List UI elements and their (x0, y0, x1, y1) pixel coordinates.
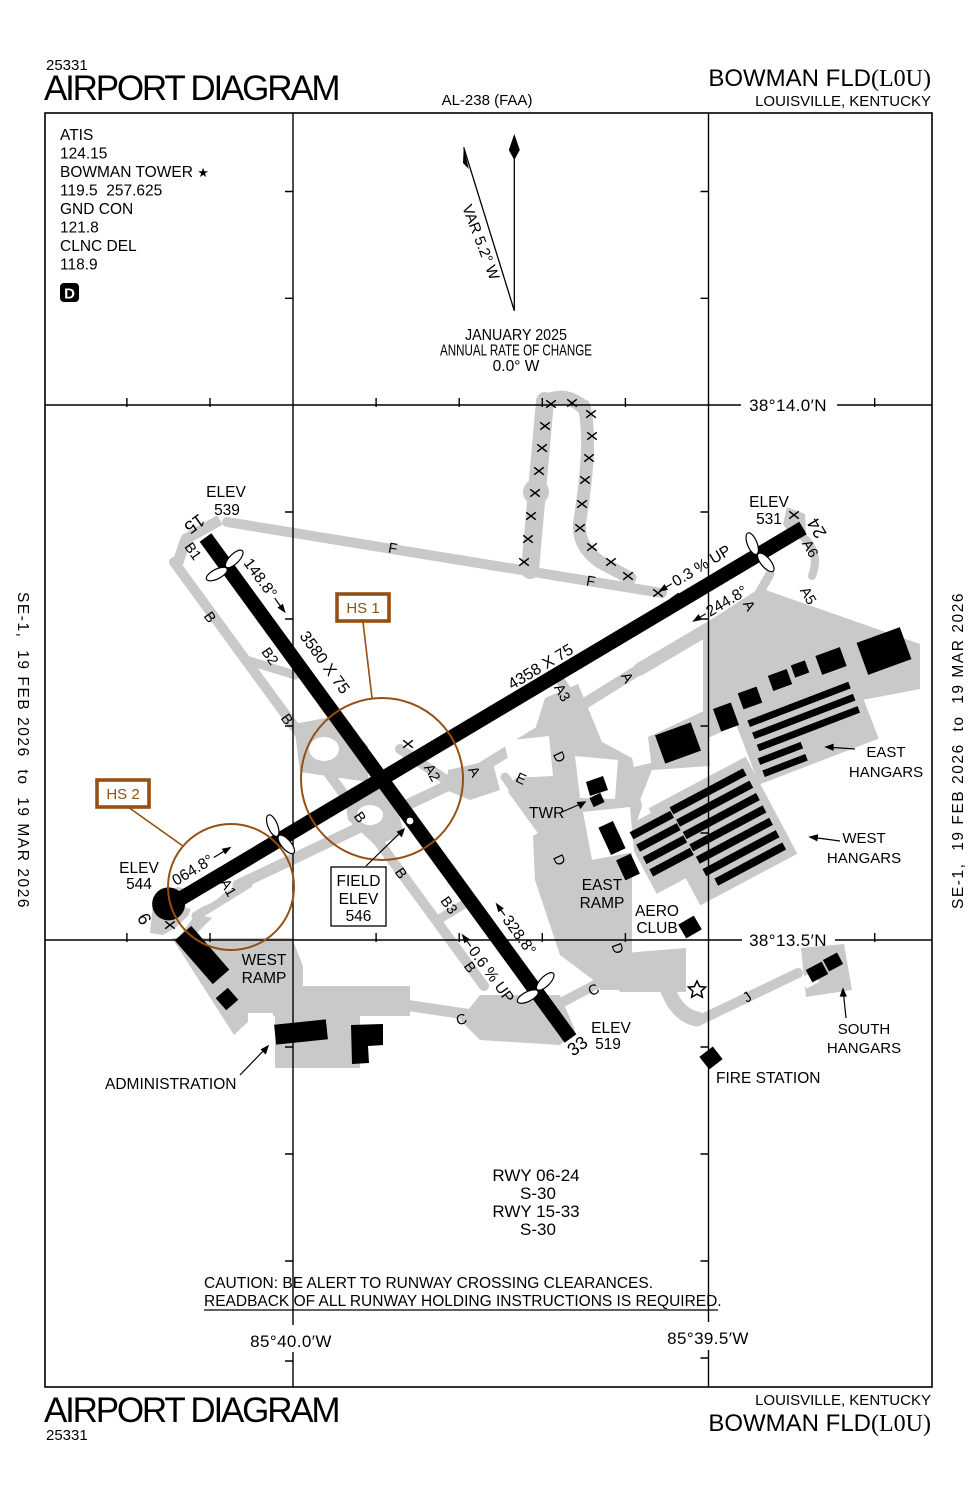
svg-text:531: 531 (756, 511, 782, 528)
svg-text:S-30: S-30 (520, 1184, 556, 1203)
svg-text:RAMP: RAMP (580, 895, 625, 912)
svg-text:AIRPORT DIAGRAM: AIRPORT DIAGRAM (44, 69, 338, 108)
svg-text:ELEV: ELEV (339, 891, 379, 908)
svg-text:D: D (64, 286, 75, 303)
svg-text:BOWMAN FLD(L0U): BOWMAN FLD(L0U) (708, 65, 931, 92)
svg-text:ELEV: ELEV (749, 494, 789, 511)
svg-text:546: 546 (346, 908, 372, 925)
svg-text:SE-1, 19 FEB 2026 to 19 MAR: SE-1, 19 FEB 2026 to 19 MAR 2026 (14, 592, 31, 909)
svg-text:ELEV: ELEV (206, 484, 246, 501)
svg-text:0.0° W: 0.0° W (493, 358, 540, 375)
svg-text:121.8: 121.8 (60, 220, 99, 237)
svg-text:HANGARS: HANGARS (849, 764, 923, 781)
svg-text:LOUISVILLE, KENTUCKY: LOUISVILLE, KENTUCKY (755, 93, 931, 110)
svg-text:CLUB: CLUB (636, 920, 677, 937)
svg-text:RWY 06-24: RWY 06-24 (492, 1166, 579, 1185)
svg-text:S-30: S-30 (520, 1220, 556, 1239)
svg-text:WEST: WEST (842, 830, 885, 847)
svg-text:CAUTION: BE ALERT TO RUNWAY CR: CAUTION: BE ALERT TO RUNWAY CROSSING CLE… (204, 1275, 653, 1292)
svg-text:WEST: WEST (242, 952, 287, 969)
svg-text:FIELD: FIELD (337, 873, 381, 890)
svg-text:HANGARS: HANGARS (827, 1040, 901, 1057)
svg-text:CLNC DEL: CLNC DEL (60, 238, 137, 255)
svg-text:TWR: TWR (529, 805, 564, 822)
svg-text:AERO: AERO (635, 903, 679, 920)
svg-text:EAST: EAST (582, 877, 623, 894)
svg-text:118.9: 118.9 (60, 257, 98, 274)
svg-text:LOUISVILLE, KENTUCKY: LOUISVILLE, KENTUCKY (755, 1392, 931, 1409)
svg-text:SOUTH: SOUTH (838, 1021, 891, 1038)
svg-text:25331: 25331 (46, 1427, 88, 1444)
svg-text:READBACK OF ALL RUNWAY HOLDING: READBACK OF ALL RUNWAY HOLDING INSTRUCTI… (204, 1293, 722, 1310)
svg-text:519: 519 (595, 1036, 621, 1053)
svg-text:RAMP: RAMP (242, 970, 287, 987)
svg-text:38°14.0′N: 38°14.0′N (749, 396, 827, 415)
svg-text:FIRE STATION: FIRE STATION (716, 1070, 820, 1087)
svg-text:ADMINISTRATION: ADMINISTRATION (105, 1076, 236, 1093)
svg-text:RWY 15-33: RWY 15-33 (492, 1202, 579, 1221)
svg-text:ELEV: ELEV (591, 1020, 631, 1037)
svg-text:AIRPORT DIAGRAM: AIRPORT DIAGRAM (44, 1391, 338, 1430)
svg-text:119.5 257.625: 119.5 257.625 (60, 183, 162, 200)
svg-text:124.15: 124.15 (60, 146, 107, 163)
svg-text:JANUARY 2025: JANUARY 2025 (465, 327, 567, 344)
svg-text:85°40.0′W: 85°40.0′W (250, 1332, 332, 1351)
svg-text:85°39.5′W: 85°39.5′W (667, 1329, 749, 1348)
svg-text:BOWMAN TOWER ★: BOWMAN TOWER ★ (60, 164, 209, 181)
svg-text:GND CON: GND CON (60, 201, 133, 218)
svg-text:AL-238 (FAA): AL-238 (FAA) (442, 92, 533, 109)
svg-text:ATIS: ATIS (60, 127, 93, 144)
svg-text:539: 539 (214, 502, 240, 519)
svg-text:EAST: EAST (866, 744, 905, 761)
svg-text:HS 2: HS 2 (106, 786, 139, 803)
svg-text:ELEV: ELEV (119, 860, 159, 877)
svg-text:SE-1, 19 FEB 2026 to 19 MAR: SE-1, 19 FEB 2026 to 19 MAR 2026 (950, 592, 967, 909)
svg-text:ANNUAL RATE OF CHANGE: ANNUAL RATE OF CHANGE (440, 343, 592, 360)
svg-text:HS 1: HS 1 (346, 600, 379, 617)
svg-text:544: 544 (126, 876, 152, 893)
svg-text:HANGARS: HANGARS (827, 850, 901, 867)
svg-text:BOWMAN FLD(L0U): BOWMAN FLD(L0U) (708, 1410, 931, 1437)
